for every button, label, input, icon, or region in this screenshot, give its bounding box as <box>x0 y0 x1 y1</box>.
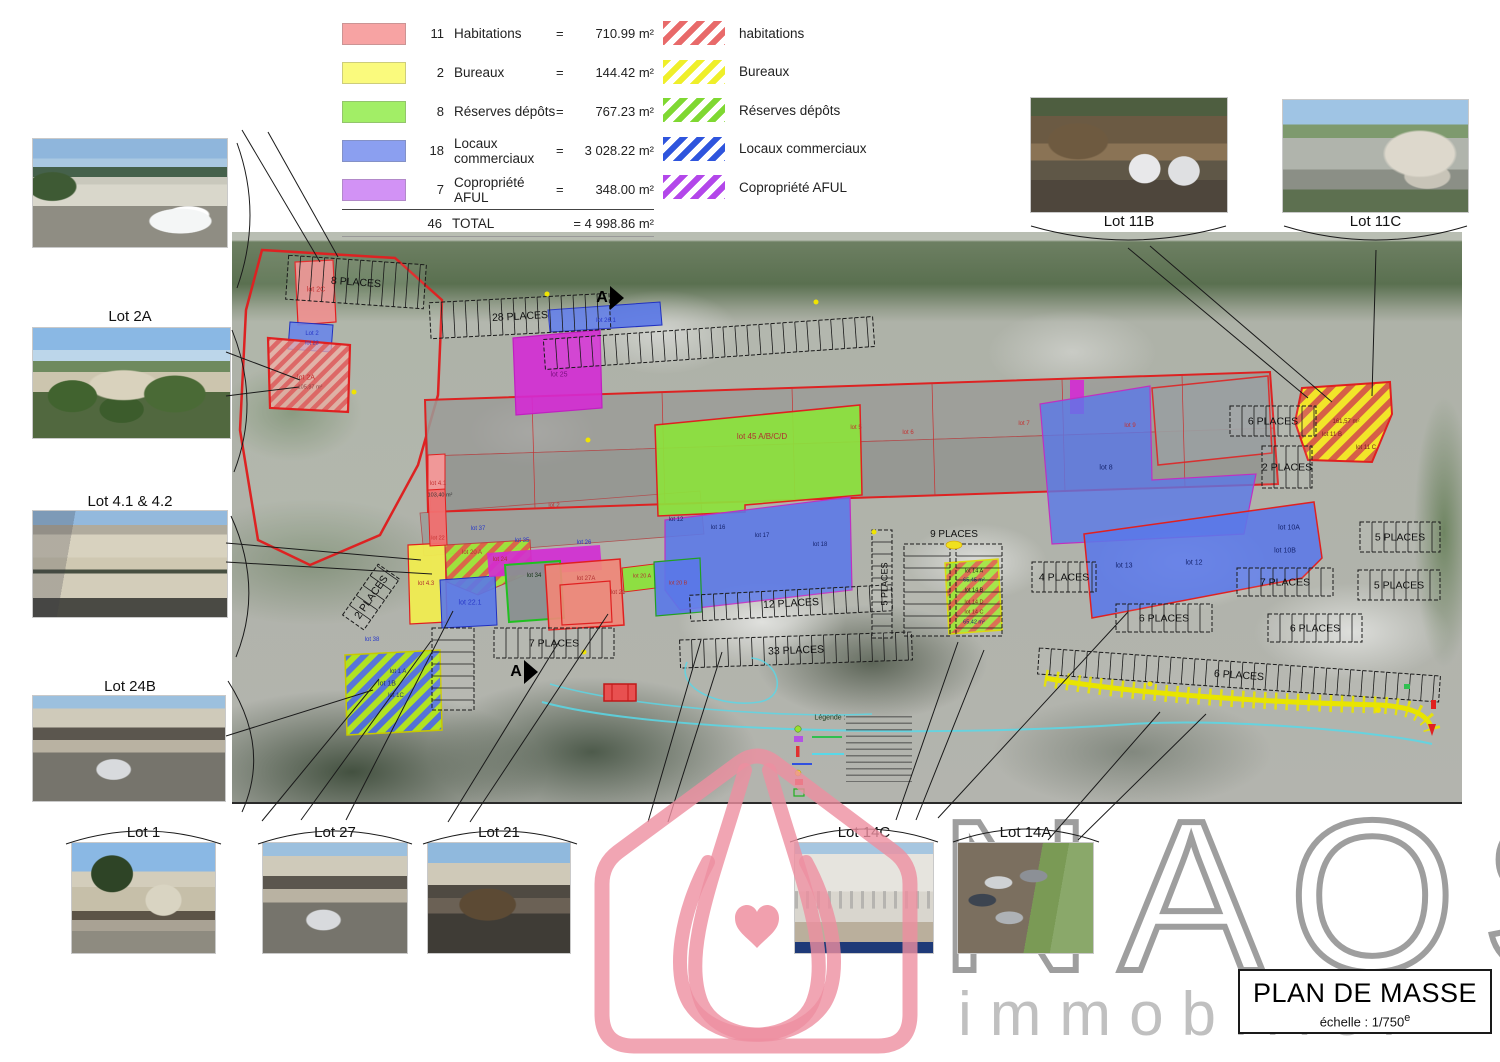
hatch-legend-row: Locaux commerciaux <box>663 130 883 169</box>
svg-text:6 PLACES: 6 PLACES <box>1248 416 1298 428</box>
photo-label-lot-21: Lot 21 <box>428 824 570 841</box>
photo-lot-14c <box>795 843 933 953</box>
svg-text:7 PLACES: 7 PLACES <box>1260 577 1310 589</box>
photo-label-lot-14c: Lot 14C <box>795 824 933 841</box>
photo-lot-4-1-4-2 <box>33 511 227 617</box>
svg-text:2 PLACES: 2 PLACES <box>1262 462 1312 474</box>
photo-lot-11c <box>1283 100 1468 212</box>
hatch-swatch-aful <box>663 175 725 199</box>
photo-lot-1 <box>72 843 215 953</box>
parking-row: 4 PLACES <box>1032 562 1096 592</box>
hatch-swatch-reserves <box>663 98 725 122</box>
hatch-label: Bureaux <box>739 64 789 79</box>
lot-20-small-reserve <box>622 564 656 592</box>
hatch-swatch-locaux <box>663 137 725 161</box>
legend-value: 710.99 m² <box>570 26 654 41</box>
parking-row: 6 PLACES <box>1268 614 1362 642</box>
hatch-swatch-bureaux <box>663 60 725 84</box>
photo-lot-27 <box>263 843 407 953</box>
legend-label: Habitations <box>454 26 556 41</box>
legend-equals: = <box>556 182 570 197</box>
legend-value: 767.23 m² <box>570 104 654 119</box>
hatch-swatch-habitations <box>663 21 725 45</box>
scale-sup: e <box>1404 1012 1410 1024</box>
photo-label-lot-11c: Lot 11C <box>1283 213 1468 230</box>
parking-row: 6 PLACES <box>1116 604 1212 632</box>
svg-text:5 PLACES: 5 PLACES <box>1375 532 1425 544</box>
parking-row <box>872 530 892 638</box>
hatch-label: habitations <box>739 26 804 41</box>
legend-value: 3 028.22 m² <box>570 143 654 158</box>
legend-equals: = <box>556 143 570 158</box>
plan-scale: échelle : 1/750e <box>1240 1012 1490 1029</box>
parking-row: 6 PLACES <box>1230 406 1316 436</box>
hatch-label: Réserves dépôts <box>739 103 840 118</box>
photo-lot-11b <box>1031 98 1227 212</box>
hatch-legend-row: Bureaux <box>663 53 883 92</box>
legend-total-value: = 4 998.86 m² <box>556 216 654 231</box>
mini-legend <box>792 726 844 796</box>
legend-count: 11 <box>420 26 444 41</box>
mini-legend-text-lines <box>846 716 912 782</box>
photo-lot-14a <box>958 843 1093 953</box>
hatch-legend: habitations Bureaux Réserves dépôts Loca… <box>663 14 883 207</box>
legend-swatch-reserves <box>342 101 406 123</box>
photo-label-lot-27: Lot 27 <box>263 824 407 841</box>
legend-swatch-habitations <box>342 23 406 45</box>
surface-legend-table: 11 Habitations = 710.99 m² 2 Bureaux = 1… <box>342 14 654 237</box>
legend-equals: = <box>556 65 570 80</box>
legend-label: Locaux commerciaux <box>454 136 556 166</box>
legend-row: 11 Habitations = 710.99 m² <box>342 14 654 53</box>
lot-4-1-habitation-strip <box>428 454 445 491</box>
hatch-label: Copropriété AFUL <box>739 180 847 195</box>
scale-text: échelle : 1/750 <box>1320 1014 1405 1029</box>
legend-value: 348.00 m² <box>570 182 654 197</box>
legend-total-count: 46 <box>418 216 442 231</box>
hatch-legend-row: habitations <box>663 14 883 53</box>
photo-label-lot-2a: Lot 2A <box>33 308 227 325</box>
legend-value: 144.42 m² <box>570 65 654 80</box>
legend-label: Copropriété AFUL <box>454 175 556 205</box>
parking-row: 2 PLACES <box>343 564 400 630</box>
photo-lot-24b <box>33 696 225 801</box>
lot-22-1-commercial <box>440 576 497 628</box>
svg-text:5 PLACES: 5 PLACES <box>1374 580 1424 592</box>
legend-row: 2 Bureaux = 144.42 m² <box>342 53 654 92</box>
plan-de-masse-page: 11 Habitations = 710.99 m² 2 Bureaux = 1… <box>0 0 1500 1062</box>
photo-lot-21 <box>428 843 570 953</box>
photo-unlabeled-lot <box>33 139 227 247</box>
hatch-legend-row: Réserves dépôts <box>663 91 883 130</box>
plan-title: PLAN DE MASSE <box>1240 978 1490 1009</box>
parking-row <box>956 544 1002 636</box>
legend-label: Réserves dépôts <box>454 104 556 119</box>
parking-row <box>432 628 474 710</box>
legend-label: Bureaux <box>454 65 556 80</box>
hatch-legend-row: Copropriété AFUL <box>663 168 883 207</box>
legend-swatch-locaux <box>342 140 406 162</box>
legend-count: 18 <box>420 143 444 158</box>
photo-lot-2a <box>33 328 230 438</box>
parking-row: 6 PLACES <box>1038 648 1441 702</box>
photo-label-lot-11b: Lot 11B <box>1031 213 1227 230</box>
legend-total-label: TOTAL <box>452 216 556 231</box>
legend-count: 8 <box>420 104 444 119</box>
legend-equals: = <box>556 104 570 119</box>
lot-22-habitation-strip <box>428 489 447 546</box>
red-car <box>604 684 636 701</box>
legend-row: 8 Réserves dépôts = 767.23 m² <box>342 92 654 131</box>
lot-2a-hatched <box>268 338 350 412</box>
svg-text:6 PLACES: 6 PLACES <box>1139 613 1189 625</box>
photo-label-lot-1: Lot 1 <box>72 824 215 841</box>
svg-text:6 PLACES: 6 PLACES <box>1290 623 1340 635</box>
legend-row: 18 Locaux commerciaux = 3 028.22 m² <box>342 131 654 170</box>
parking-row: 7 PLACES <box>494 628 614 658</box>
legend-swatch-bureaux <box>342 62 406 84</box>
parking-row: 2 PLACES <box>1262 446 1312 488</box>
legend-row: 7 Copropriété AFUL = 348.00 m² <box>342 170 654 209</box>
svg-text:7 PLACES: 7 PLACES <box>529 638 579 650</box>
parking-row <box>904 544 950 636</box>
photo-label-lot-24b: Lot 24B <box>33 678 227 695</box>
svg-text:33 PLACES: 33 PLACES <box>768 644 824 658</box>
parking-row: 5 PLACES <box>1360 522 1440 552</box>
legend-swatch-aful <box>342 179 406 201</box>
legend-total-row: 46 TOTAL = 4 998.86 m² <box>342 209 654 237</box>
title-block: PLAN DE MASSE échelle : 1/750e <box>1238 969 1492 1034</box>
aerial-site-plan: 8 PLACES28 PLACES7 PLACES33 PLACES12 PLA… <box>232 232 1462 804</box>
legend-count: 7 <box>420 182 444 197</box>
photo-label-lot-14a: Lot 14A <box>958 824 1093 841</box>
parking-row: 5 PLACES <box>1358 570 1440 600</box>
legend-count: 2 <box>420 65 444 80</box>
legend-equals: = <box>556 26 570 41</box>
photo-label-lot-4-1-4-2: Lot 4.1 & 4.2 <box>33 493 227 510</box>
parking-row: 7 PLACES <box>1237 568 1333 596</box>
hatch-label: Locaux commerciaux <box>739 141 867 156</box>
lot-1-hatched <box>345 650 442 735</box>
heart-icon <box>735 905 779 948</box>
svg-text:4 PLACES: 4 PLACES <box>1039 572 1089 584</box>
